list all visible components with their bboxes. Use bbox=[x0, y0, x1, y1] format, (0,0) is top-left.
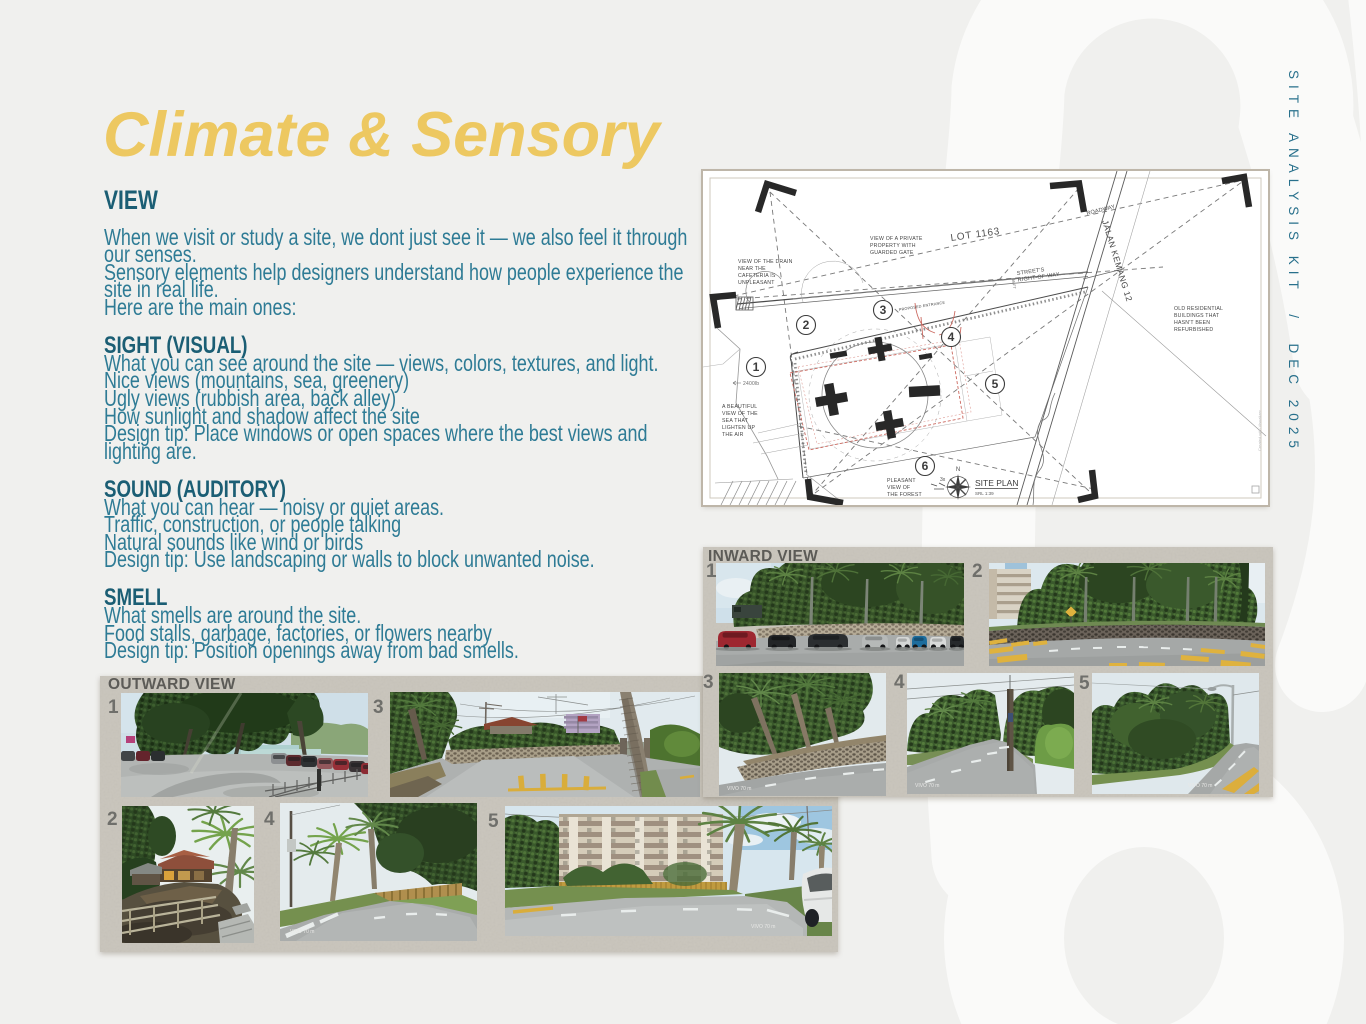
svg-text:35 FT: 35 FT bbox=[1011, 279, 1016, 290]
svg-text:6: 6 bbox=[922, 459, 929, 473]
svg-text:VIEW OF A PRIVATEPROPERTY WITH: VIEW OF A PRIVATEPROPERTY WITHGUARDED GA… bbox=[870, 236, 923, 256]
svg-text:ROADWAY: ROADWAY bbox=[1086, 204, 1116, 217]
svg-text:3: 3 bbox=[880, 303, 887, 317]
svg-text:VIVO 70 m: VIVO 70 m bbox=[727, 786, 751, 792]
svg-text:5: 5 bbox=[992, 377, 999, 391]
svg-text:VIVO 70 m: VIVO 70 m bbox=[915, 783, 939, 789]
svg-text:N: N bbox=[956, 467, 960, 473]
svg-text:3x: 3x bbox=[940, 477, 946, 483]
svg-text:2400lb: 2400lb bbox=[743, 381, 759, 387]
svg-text:JALAN KEMANG 12: JALAN KEMANG 12 bbox=[1100, 219, 1134, 303]
svg-text:VIVO 70 m: VIVO 70 m bbox=[1188, 783, 1212, 789]
svg-text:Created with Visualizer: Created with Visualizer bbox=[1257, 409, 1262, 451]
svg-text:OLD RESIDENTIALBUILDINGS THATH: OLD RESIDENTIALBUILDINGS THATHASN'T BEEN… bbox=[1174, 306, 1223, 333]
svg-text:SITE PLAN: SITE PLAN bbox=[975, 478, 1018, 488]
svg-text:VIEW OF THE DRAINNEAR THECAFET: VIEW OF THE DRAINNEAR THECAFETERIA ISUNP… bbox=[738, 259, 793, 286]
svg-text:PROPOSED ENTRANCE: PROPOSED ENTRANCE bbox=[899, 301, 946, 312]
svg-text:1: 1 bbox=[753, 360, 760, 374]
svg-text:VIVO 70 m: VIVO 70 m bbox=[751, 924, 775, 930]
svg-text:2: 2 bbox=[803, 318, 810, 332]
svg-text:A BEAUTIFULVIEW OF THESEA THAT: A BEAUTIFULVIEW OF THESEA THATLIGHTEN UP… bbox=[722, 404, 758, 438]
svg-text:4: 4 bbox=[948, 330, 955, 344]
svg-text:PLEASANTVIEW OFTHE FOREST: PLEASANTVIEW OFTHE FOREST bbox=[887, 478, 922, 498]
svg-text:VIVO 70 m: VIVO 70 m bbox=[290, 929, 314, 935]
svg-text:SRL 1:39: SRL 1:39 bbox=[975, 491, 994, 496]
